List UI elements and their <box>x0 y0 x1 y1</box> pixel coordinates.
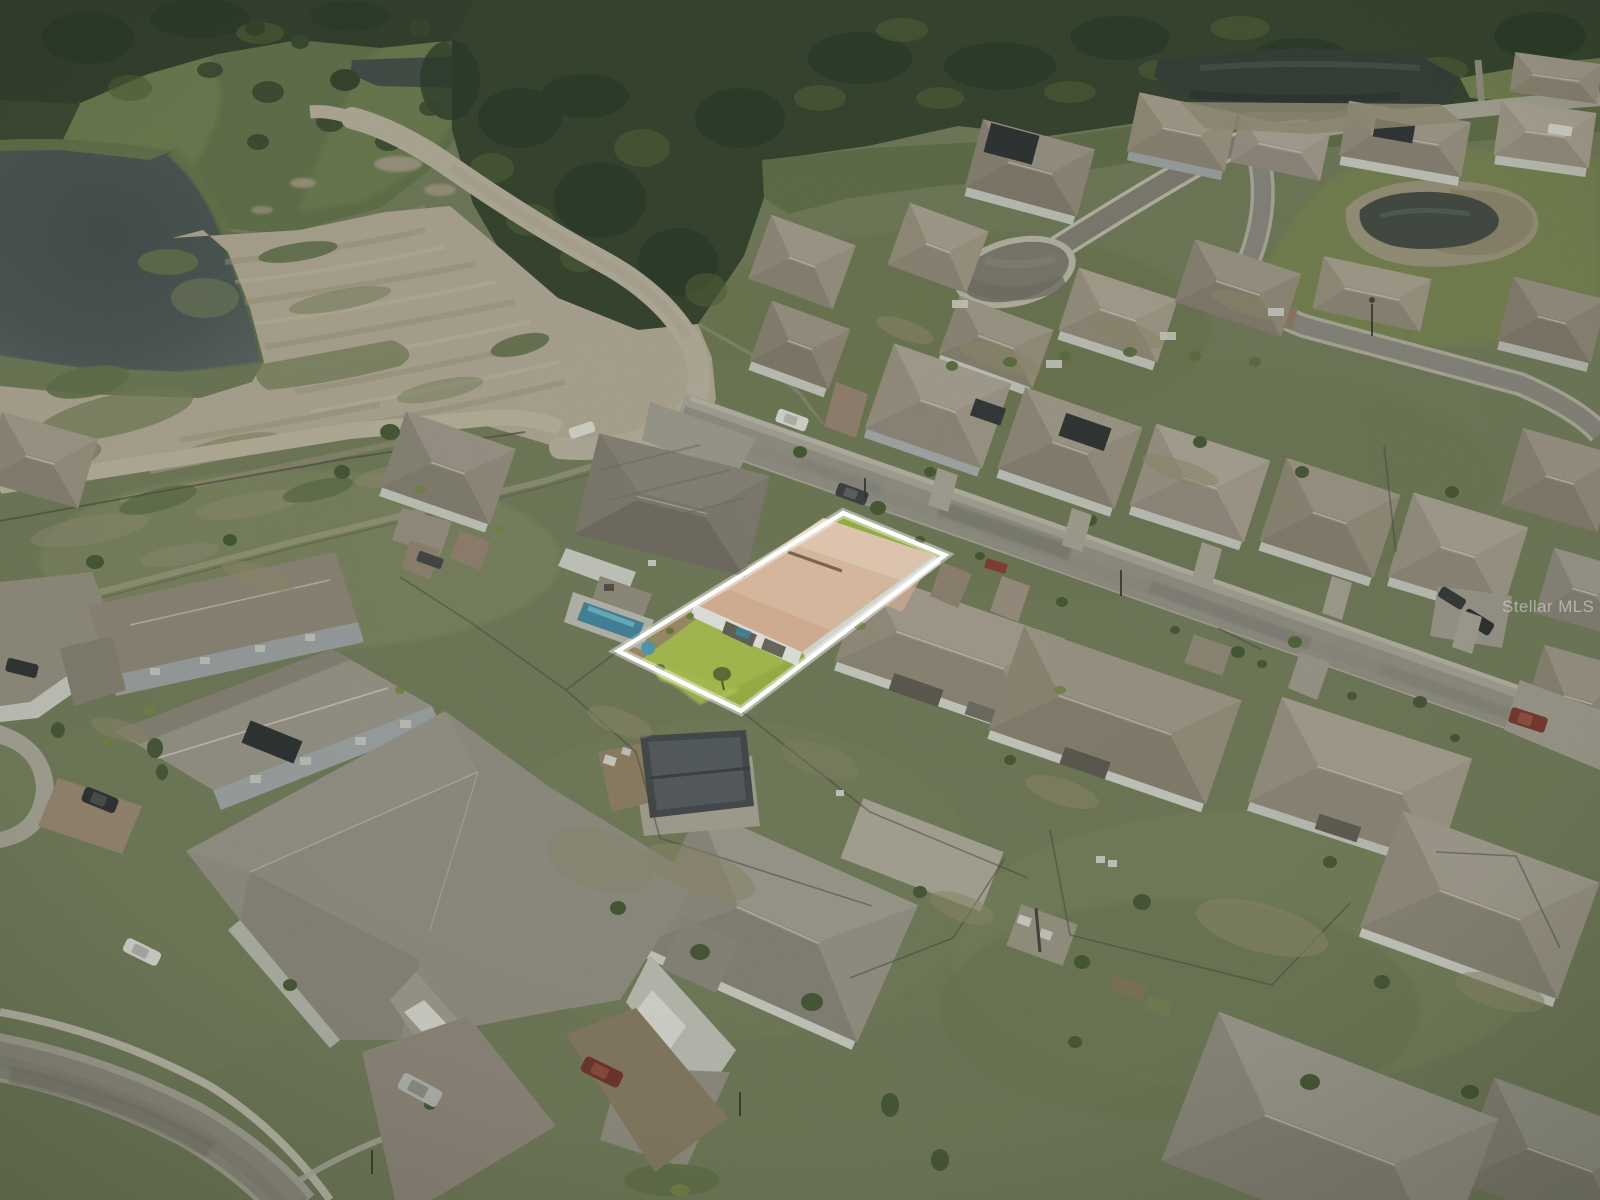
svg-text:Stellar MLS: Stellar MLS <box>1502 597 1594 616</box>
